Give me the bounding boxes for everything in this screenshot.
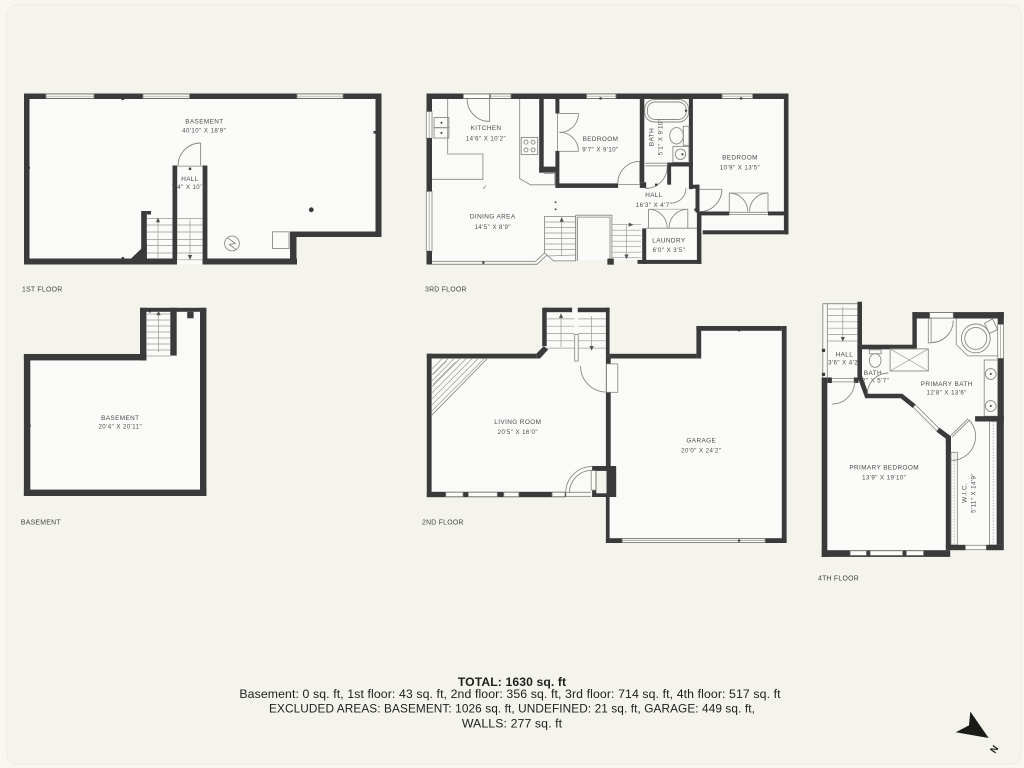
svg-text:WALLS: 277 sq. ft: WALLS: 277 sq. ft xyxy=(462,717,563,731)
svg-text:20'5" X 16'0": 20'5" X 16'0" xyxy=(498,429,538,436)
svg-text:13'9" X 19'10": 13'9" X 19'10" xyxy=(862,475,906,482)
svg-text:BASEMENT: BASEMENT xyxy=(101,415,139,422)
svg-text:HALL: HALL xyxy=(181,176,199,183)
svg-text:W.I.C.: W.I.C. xyxy=(962,483,969,503)
svg-text:LIVING ROOM: LIVING ROOM xyxy=(494,419,541,426)
svg-text:14'6" X 10'2": 14'6" X 10'2" xyxy=(466,136,506,143)
svg-text:KITCHEN: KITCHEN xyxy=(471,125,502,132)
svg-text:12'8" X 13'6": 12'8" X 13'6" xyxy=(927,390,967,397)
svg-text:BASEMENT: BASEMENT xyxy=(185,119,223,126)
svg-text:20'4" X 20'11": 20'4" X 20'11" xyxy=(98,424,142,431)
svg-text:LAUNDRY: LAUNDRY xyxy=(652,237,686,244)
svg-text:10'9" X 13'5": 10'9" X 13'5" xyxy=(720,165,760,172)
svg-text:1ST FLOOR: 1ST FLOOR xyxy=(22,287,62,294)
svg-text:PRIMARY BATH: PRIMARY BATH xyxy=(921,381,973,388)
svg-text:DINING AREA: DINING AREA xyxy=(470,214,516,221)
svg-text:2ND FLOOR: 2ND FLOOR xyxy=(422,520,464,527)
svg-text:BATH: BATH xyxy=(864,370,882,377)
svg-text:16'3" X 4'7": 16'3" X 4'7" xyxy=(636,202,672,209)
svg-text:9'7" X 9'10": 9'7" X 9'10" xyxy=(582,147,618,154)
svg-text:PRIMARY BEDROOM: PRIMARY BEDROOM xyxy=(849,465,919,472)
svg-text:BASEMENT: BASEMENT xyxy=(21,519,61,526)
svg-text:EXCLUDED AREAS: BASEMENT: 1026: EXCLUDED AREAS: BASEMENT: 1026 sq. ft, U… xyxy=(269,702,755,716)
svg-text:6'0" X 3'5": 6'0" X 3'5" xyxy=(653,247,686,254)
svg-text:5'11" X 14'9": 5'11" X 14'9" xyxy=(970,473,977,513)
svg-text:3'6" X 4'2": 3'6" X 4'2" xyxy=(828,360,861,367)
svg-text:40'10" X 18'9": 40'10" X 18'9" xyxy=(182,128,226,135)
svg-text:3RD FLOOR: 3RD FLOOR xyxy=(425,287,467,294)
svg-text:14'5" X 8'9": 14'5" X 8'9" xyxy=(474,224,510,231)
svg-text:20'0" X 24'2": 20'0" X 24'2" xyxy=(681,447,721,454)
svg-text:BATH: BATH xyxy=(649,128,656,146)
svg-text:Basement: 0 sq. ft, 1st floor:: Basement: 0 sq. ft, 1st floor: 43 sq. ft… xyxy=(239,687,781,701)
svg-text:HALL: HALL xyxy=(836,352,854,359)
svg-text:GARAGE: GARAGE xyxy=(686,437,716,444)
svg-text:BEDROOM: BEDROOM xyxy=(583,136,619,143)
svg-text:7'4" X 10'7": 7'4" X 10'7" xyxy=(172,184,208,191)
svg-text:HALL: HALL xyxy=(645,192,663,199)
svg-text:5'1" X 9'10": 5'1" X 9'10" xyxy=(658,119,665,155)
svg-text:4TH FLOOR: 4TH FLOOR xyxy=(818,576,859,583)
svg-text:BEDROOM: BEDROOM xyxy=(722,155,758,162)
